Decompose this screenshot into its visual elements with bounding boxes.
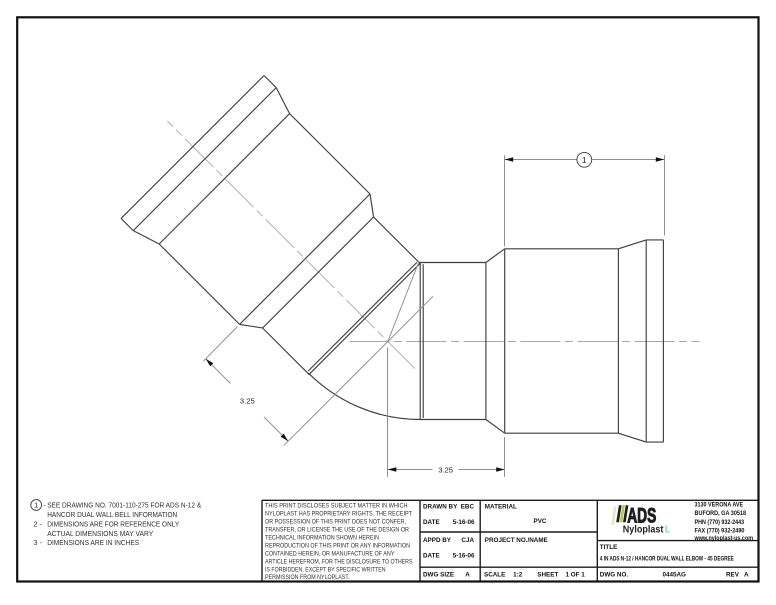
svg-text:1 OF 1: 1 OF 1	[566, 571, 586, 578]
svg-text:DATE: DATE	[423, 553, 440, 560]
svg-text:1: 1	[582, 155, 587, 165]
svg-text:OR POSSESSION OF THIS PRINT DO: OR POSSESSION OF THIS PRINT DOES NOT CON…	[265, 519, 406, 526]
svg-text:PHN (770) 932-2443: PHN (770) 932-2443	[695, 519, 745, 526]
svg-text:5-16-06: 5-16-06	[453, 519, 475, 526]
svg-text:THIS PRINT DISCLOSES SUBJECT M: THIS PRINT DISCLOSES SUBJECT MATTER IN W…	[265, 503, 408, 510]
svg-text:EBC: EBC	[461, 504, 475, 511]
svg-text:DIMENSIONS ARE FOR REFERENCE O: DIMENSIONS ARE FOR REFERENCE ONLY	[47, 519, 179, 528]
svg-text:TECHNICAL INFORMATION SHOWN HE: TECHNICAL INFORMATION SHOWN HEREIN	[265, 535, 379, 542]
svg-text:SEE DRAWING NO. 7001-110-275 F: SEE DRAWING NO. 7001-110-275 FOR ADS N-1…	[47, 501, 201, 510]
svg-text:PVC: PVC	[534, 518, 547, 525]
svg-text:A: A	[744, 572, 749, 579]
svg-text:DRAWN BY: DRAWN BY	[423, 504, 458, 511]
svg-text:0445AG: 0445AG	[663, 572, 687, 579]
svg-text:A: A	[465, 571, 470, 578]
svg-text:1:2: 1:2	[513, 571, 523, 578]
svg-text:TITLE: TITLE	[600, 544, 618, 551]
svg-text:3 -: 3 -	[34, 538, 43, 547]
svg-text:3.25: 3.25	[240, 396, 255, 405]
svg-text:REPRODUCTION OF THIS PRINT OR: REPRODUCTION OF THIS PRINT OR ANY INFORM…	[265, 542, 410, 549]
svg-text:PERMISSION FROM NYLOPLAST.: PERMISSION FROM NYLOPLAST.	[265, 574, 350, 581]
svg-text:DIMENSIONS ARE IN INCHES: DIMENSIONS ARE IN INCHES	[47, 538, 139, 547]
svg-text:BUFORD, GA 30518: BUFORD, GA 30518	[695, 510, 747, 517]
svg-text:APPD BY: APPD BY	[423, 537, 452, 544]
svg-text:2 -: 2 -	[34, 519, 43, 528]
svg-text:MATERIAL: MATERIAL	[485, 504, 517, 511]
svg-text:4 IN ADS N-12 / HANCOR DUAL WA: 4 IN ADS N-12 / HANCOR DUAL WALL ELBOW -…	[600, 556, 734, 563]
svg-text:CJA: CJA	[461, 537, 474, 544]
svg-text:L: L	[665, 524, 671, 535]
svg-text:NYLOPLAST HAS PROPRIETARY RIGH: NYLOPLAST HAS PROPRIETARY RIGHTS. THE RE…	[265, 511, 412, 518]
svg-text:1: 1	[34, 503, 38, 510]
svg-text:PROJECT NO./NAME: PROJECT NO./NAME	[485, 537, 548, 544]
svg-text:DWG NO.: DWG NO.	[600, 572, 629, 579]
svg-text:CONTAINED HEREIN, OR MANUFACTU: CONTAINED HEREIN, OR MANUFACTURE OF ANY	[265, 550, 395, 557]
svg-text:5-16-06: 5-16-06	[453, 553, 475, 560]
svg-text:ACTUAL DIMENSIONS MAY VARY: ACTUAL DIMENSIONS MAY VARY	[47, 529, 153, 538]
svg-text:ARTICLE HEREFROM, FOR THE DISC: ARTICLE HEREFROM, FOR THE DISCLOSURE TO …	[265, 558, 413, 565]
svg-text:TRANSFER, OR LICENSE THE USE O: TRANSFER, OR LICENSE THE USE OF THE DESI…	[265, 527, 409, 534]
svg-text:DWG SIZE: DWG SIZE	[423, 571, 454, 578]
svg-text:www.nyloplast-us.com: www.nyloplast-us.com	[694, 535, 754, 542]
svg-text:3.25: 3.25	[438, 465, 453, 474]
svg-text:HANCOR DUAL WALL BELL INFORMAT: HANCOR DUAL WALL BELL INFORMATION	[47, 510, 177, 519]
svg-text:FAX (770) 932-2490: FAX (770) 932-2490	[695, 527, 745, 534]
svg-text:DATE: DATE	[423, 519, 440, 526]
svg-text:REV: REV	[726, 572, 740, 579]
svg-text:Nyloplast: Nyloplast	[623, 523, 664, 534]
svg-text:SHEET: SHEET	[537, 571, 558, 578]
svg-text:SCALE: SCALE	[484, 571, 505, 578]
svg-text:IS FORBIDDEN, EXCEPT BY SPECIF: IS FORBIDDEN, EXCEPT BY SPECIFIC WRITTEN	[265, 566, 386, 573]
svg-text:3130 VERONA AVE: 3130 VERONA AVE	[695, 502, 744, 509]
